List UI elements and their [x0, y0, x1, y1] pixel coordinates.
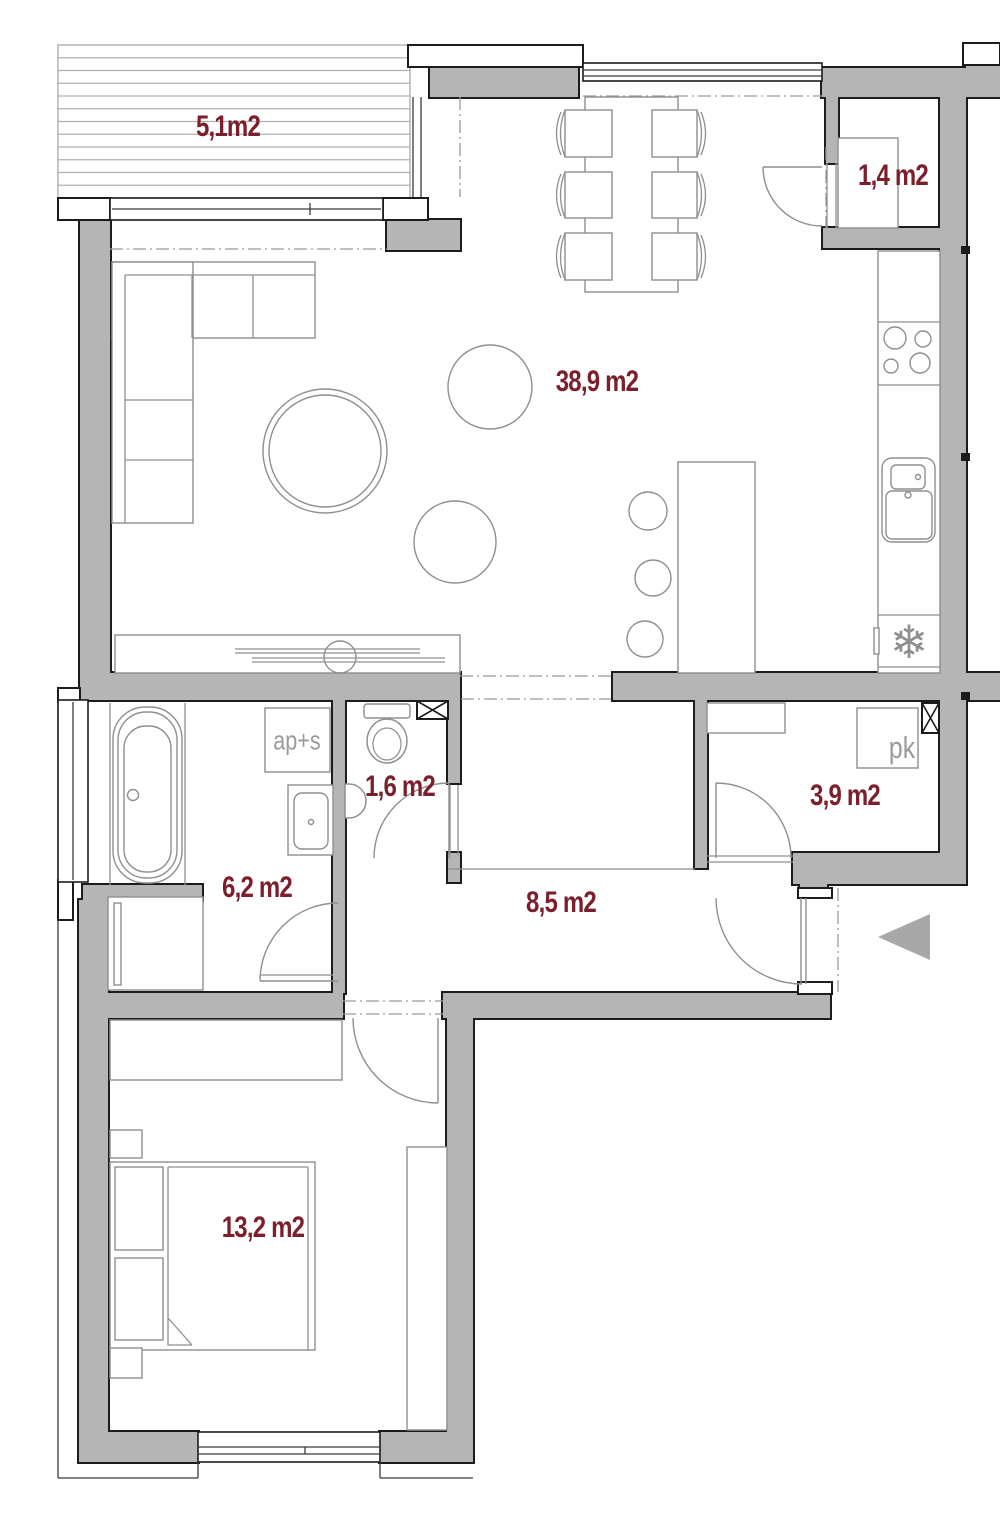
vent-shaft-icon-wc: [417, 701, 448, 719]
label-bedroom-area: 13,2 m2: [222, 1211, 304, 1245]
label-wc-area: 1,6 m2: [365, 770, 435, 804]
label-hallway-area: 8,5 m2: [526, 886, 596, 920]
label-storage-cabinet: pk: [889, 730, 915, 766]
floor-plan-drawing: ❄: [0, 0, 1000, 1526]
label-closet-area: 1,4 m2: [858, 159, 928, 193]
fridge-snowflake-icon: ❄: [890, 615, 929, 669]
label-washer-dryer: ap+s: [273, 726, 320, 757]
label-storage-area: 3,9 m2: [810, 779, 880, 813]
floor-plan: ❄ 5,1m2 1,4 m2 38,9 m2 1,6 m2 3,9 m2 6,2…: [0, 0, 1000, 1526]
label-living-area: 38,9 m2: [556, 365, 638, 399]
vent-shaft-icon-storage: [922, 703, 939, 733]
label-terrace-area: 5,1m2: [196, 110, 260, 144]
entrance-arrow-icon: [878, 914, 930, 960]
label-bathroom-area: 6,2 m2: [222, 871, 292, 905]
